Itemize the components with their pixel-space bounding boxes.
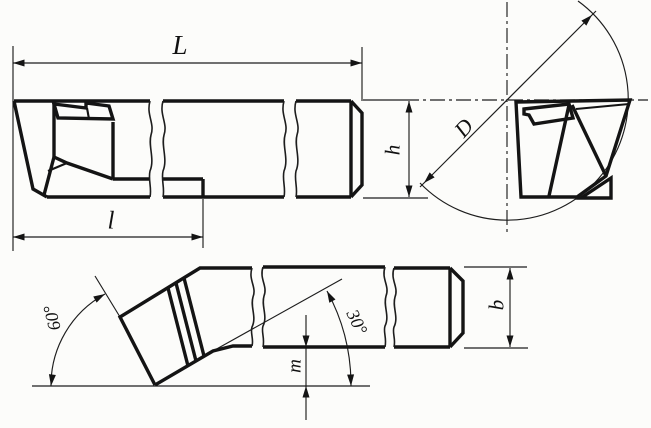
- dim-label-shank-width: b: [487, 300, 508, 311]
- side-view: [14, 101, 362, 197]
- plan-view-insert-stripes: [168, 278, 204, 366]
- end-view: [516, 100, 630, 198]
- drawing-canvas: [0, 0, 651, 428]
- dim-label-head-length: l: [108, 208, 115, 233]
- dimension-lines: [13, 1, 628, 420]
- dim-label-shank-height: h: [383, 145, 404, 156]
- dim-label-overall-length: L: [172, 32, 187, 59]
- side-view-head-insert: [44, 101, 203, 197]
- technical-drawing: L l D h b m 60° 30°: [0, 0, 651, 428]
- dim-label-tip-offset: m: [286, 359, 305, 373]
